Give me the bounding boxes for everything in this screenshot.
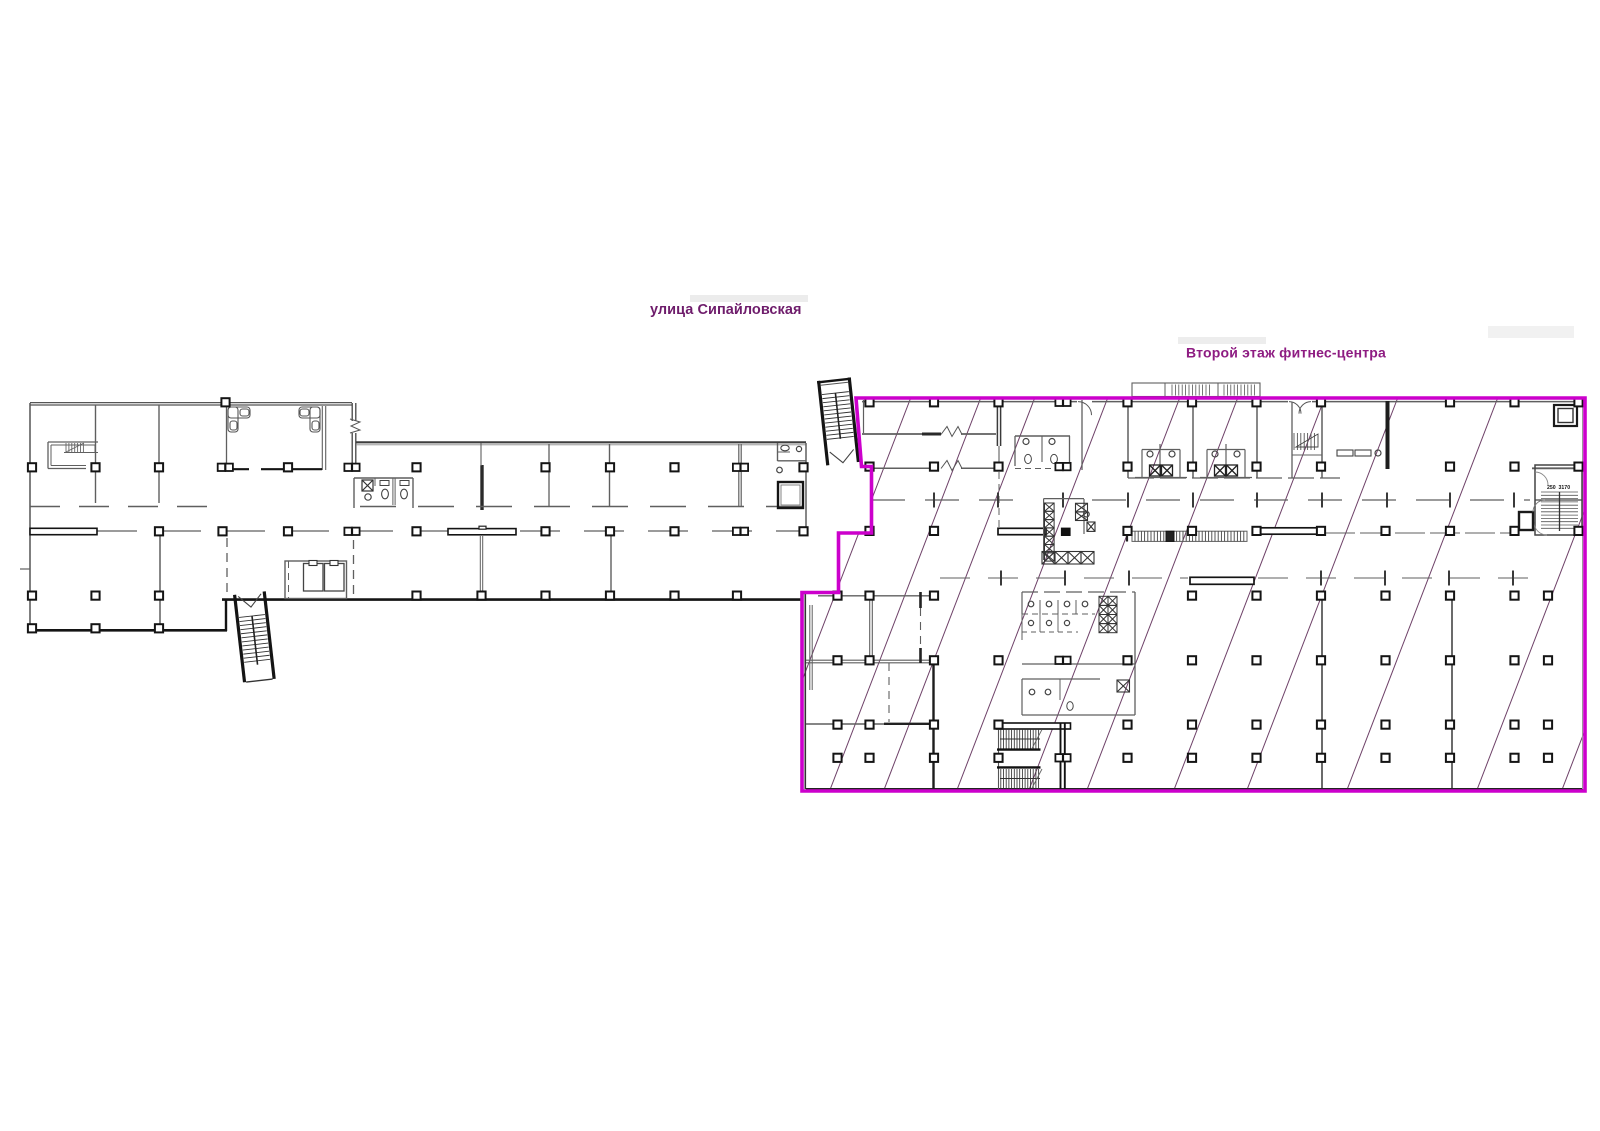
svg-text:Второй этаж фитнес-центра: Второй этаж фитнес-центра: [1186, 345, 1386, 361]
svg-text:250 3170: 250 3170: [1547, 485, 1570, 491]
svg-text:улица Сипайловская: улица Сипайловская: [650, 302, 801, 318]
